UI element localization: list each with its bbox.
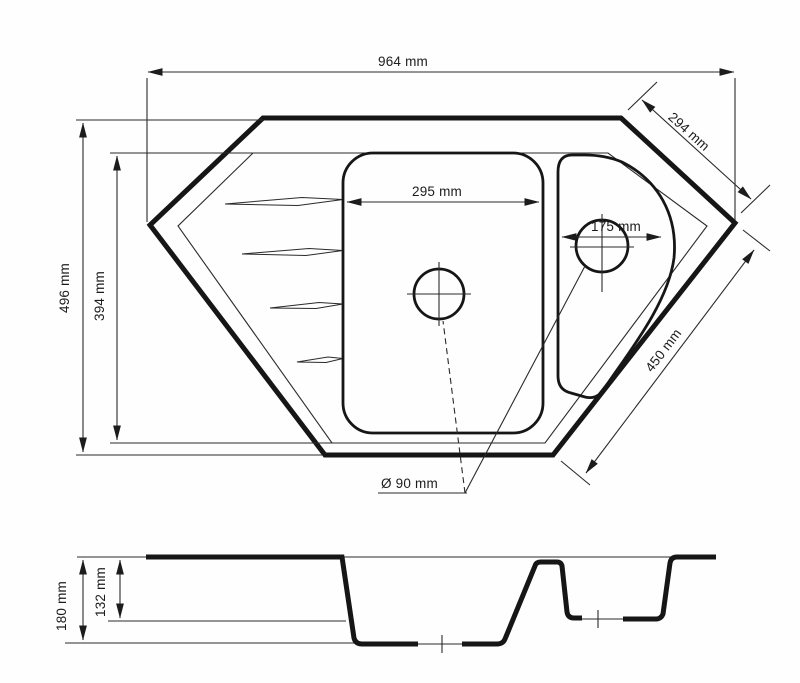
dimension-top-right-edge-label: 294 mm xyxy=(665,109,712,154)
dimension-line xyxy=(586,250,754,473)
dimension-small-bowl-width: 175 mm xyxy=(562,219,661,237)
drainer-groove xyxy=(297,357,343,363)
dimension-small-bowl-depth: 132 mm xyxy=(93,560,120,618)
leader-line-main-drain xyxy=(443,321,465,493)
dimension-total-depth: 180 mm xyxy=(54,560,83,640)
extension-line xyxy=(561,461,590,485)
section-profile-left xyxy=(146,557,418,644)
dimension-small-bowl-width-label: 175 mm xyxy=(591,219,641,234)
main-bowl-drain xyxy=(407,262,471,326)
drainer-groove xyxy=(242,249,343,256)
dimension-inner-depth: 394 mm xyxy=(92,153,332,443)
dimension-bottom-right-edge: 450 mm xyxy=(561,230,770,485)
leader-line-small-drain xyxy=(465,266,585,493)
drawing-canvas: 964 mm 496 mm 394 mm 295 mm 175 mm xyxy=(0,0,800,683)
drainer-groove xyxy=(270,303,343,309)
sink-top-view: 964 mm 496 mm 394 mm 295 mm 175 mm xyxy=(57,54,770,493)
drain-diameter-callout: Ø 90 mm xyxy=(378,266,585,493)
drain-diameter-label: Ø 90 mm xyxy=(381,476,438,491)
dimension-inner-depth-label: 394 mm xyxy=(92,271,107,321)
sink-technical-drawing: 964 mm 496 mm 394 mm 295 mm 175 mm xyxy=(0,0,800,683)
dimension-total-depth-label: 180 mm xyxy=(54,581,69,631)
dimension-overall-width-label: 964 mm xyxy=(378,54,428,69)
dimension-main-bowl-width: 295 mm xyxy=(347,184,539,202)
dimension-overall-depth-label: 496 mm xyxy=(57,263,72,313)
drainer-groove xyxy=(225,198,343,206)
section-profile-right xyxy=(623,557,716,619)
dimension-main-bowl-width-label: 295 mm xyxy=(412,184,462,199)
section-profile-divider xyxy=(462,562,582,644)
dimension-small-bowl-depth-label: 132 mm xyxy=(93,567,108,617)
extension-line xyxy=(741,185,770,213)
drainer-grooves xyxy=(225,198,343,363)
extension-line xyxy=(743,230,770,251)
sink-section-view: 180 mm 132 mm xyxy=(54,557,716,653)
dimension-top-right-edge: 294 mm xyxy=(628,82,770,213)
extension-line xyxy=(628,82,657,110)
